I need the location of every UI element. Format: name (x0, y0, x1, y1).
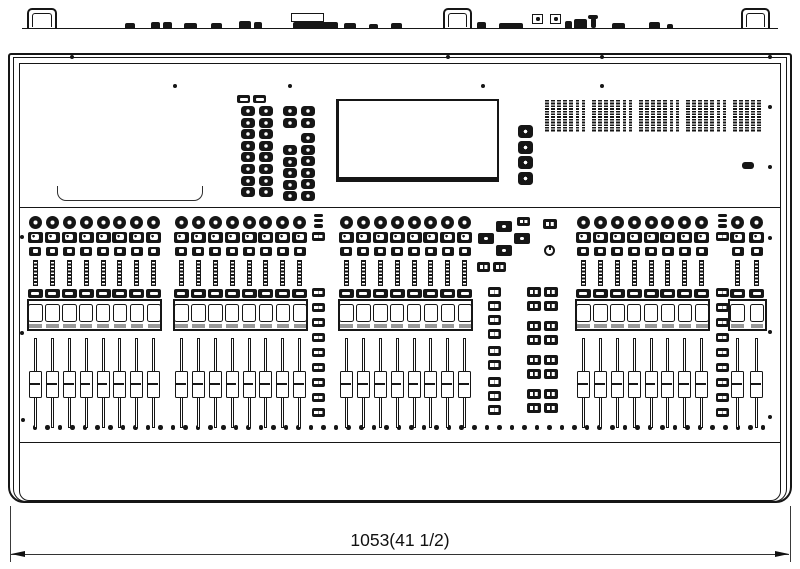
display-window (28, 304, 43, 323)
fader-knob-groove (409, 383, 419, 386)
scene-button (488, 346, 501, 356)
button-led-dots (314, 321, 317, 324)
display-window (441, 304, 456, 323)
channel-cue-button (459, 247, 471, 257)
channel-name-display (644, 304, 659, 328)
master-button (544, 301, 558, 311)
select-button-glyph (99, 234, 107, 240)
button-slot (48, 292, 56, 295)
fader-knob-groove (595, 383, 605, 386)
button-led-dots (530, 372, 533, 375)
cue-button-glyph (263, 249, 268, 253)
button-led-dots (718, 366, 721, 369)
touchscreen-display (336, 99, 499, 182)
meter-bridge-led-strip (698, 100, 702, 132)
channel-level-meter (230, 260, 235, 286)
channel-select-button (356, 232, 371, 243)
hand-rest-tray (57, 186, 203, 201)
button-led-dots (718, 336, 721, 339)
button-led-dots (496, 265, 499, 268)
fader-knob-groove (260, 383, 270, 386)
rear-connector-box (291, 13, 324, 22)
selected-channel-encoder-knob (259, 118, 273, 128)
display-bar (357, 324, 370, 328)
display-bar (148, 324, 161, 328)
select-button-glyph (630, 234, 638, 240)
screw-hole (70, 425, 75, 430)
display-bar (114, 324, 127, 328)
screw-hole (497, 425, 502, 430)
channel-level-meter (84, 260, 89, 286)
center-encoder-knob (518, 156, 533, 169)
button-led-dots (490, 380, 493, 383)
channel-encoder-knob (46, 216, 59, 229)
display-bar (209, 324, 222, 328)
fader-knob (130, 371, 143, 398)
meter-bridge-led-strip (616, 100, 620, 132)
rear-connector-bump (211, 23, 222, 29)
button-led-dots (718, 306, 721, 309)
screw-hole (284, 425, 289, 430)
center-button (517, 217, 530, 226)
display-bar (374, 324, 387, 328)
meter-bridge-led-strip (704, 100, 708, 132)
channel-on-button (146, 289, 161, 298)
selected-channel-encoder-knob (259, 141, 273, 151)
display-window (644, 304, 659, 323)
scene-button (488, 315, 501, 325)
channel-encoder-knob (147, 216, 160, 229)
select-button-glyph (376, 234, 384, 240)
channel-level-meter (412, 260, 417, 286)
fader-knob (611, 371, 624, 398)
channel-select-button (390, 232, 405, 243)
button-led-dots (314, 411, 317, 414)
display-window (339, 304, 354, 323)
fader-knob-groove (679, 383, 689, 386)
column-button (716, 288, 729, 298)
column-button (312, 303, 325, 313)
channel-name-display (576, 304, 591, 328)
cue-button-glyph (462, 249, 467, 253)
channel-on-button (390, 289, 405, 298)
channel-on-button (242, 289, 257, 298)
selected-channel-encoder-knob (283, 157, 297, 167)
fader-knob-groove (131, 383, 141, 386)
channel-encoder-knob (226, 216, 239, 229)
channel-cue-button (97, 247, 109, 257)
channel-name-display (62, 304, 77, 328)
channel-level-meter (134, 260, 139, 286)
select-button-glyph (753, 234, 761, 240)
select-button-glyph (393, 234, 401, 240)
channel-cue-button (46, 247, 58, 257)
channel-name-display (441, 304, 456, 328)
channel-select-button (45, 232, 60, 243)
channel-level-meter (699, 260, 704, 286)
screw-hole (710, 425, 715, 430)
fader-knob-groove (662, 383, 672, 386)
master-button (544, 335, 558, 345)
display-bar (751, 324, 764, 328)
button-led-dots (546, 222, 549, 225)
channel-name-display (339, 304, 354, 328)
cursor-dot (484, 237, 487, 240)
meter-bridge-led-strip (651, 100, 655, 132)
display-bar (260, 324, 273, 328)
selected-channel-encoder-knob (283, 106, 297, 116)
select-button-glyph (245, 234, 253, 240)
channel-cue-button (732, 247, 744, 257)
fader-knob (209, 371, 222, 398)
meter-bridge-led-strip (645, 100, 649, 132)
channel-select-button (749, 232, 764, 243)
cue-button-glyph (395, 249, 400, 253)
meter-bridge-led-strip (717, 100, 721, 132)
cursor-down-button (496, 245, 512, 256)
display-bar (277, 324, 290, 328)
channel-select-button (292, 232, 307, 243)
button-led-dots (547, 372, 550, 375)
channel-encoder-knob (374, 216, 387, 229)
selected-channel-encoder-knob (259, 129, 273, 139)
master-button (544, 403, 558, 413)
cue-button-glyph (280, 249, 285, 253)
button-led-dots (530, 338, 533, 341)
channel-level-meter (428, 260, 433, 286)
fader-knob (577, 371, 590, 398)
button-slot (31, 292, 39, 295)
channel-select-button (96, 232, 111, 243)
screw-hole (510, 425, 515, 430)
fader-knob (441, 371, 454, 398)
display-bar (442, 324, 455, 328)
selected-channel-encoder-knob (241, 129, 255, 139)
screw-hole (748, 425, 753, 430)
rear-connector-bump (667, 24, 673, 28)
meter-bridge-led-strip (723, 100, 727, 132)
channel-level-meter (247, 260, 252, 286)
button-slot (444, 292, 452, 295)
meter-bridge-led-strip (676, 100, 680, 132)
channel-name-display (276, 304, 291, 328)
display-window (276, 304, 291, 323)
button-slot (647, 292, 655, 295)
channel-name-display (191, 304, 206, 328)
button-led-dots (718, 351, 721, 354)
indicator-led-bar (718, 224, 727, 227)
rear-connector-socket (550, 14, 561, 24)
channel-encoder-knob (357, 216, 370, 229)
display-window (113, 304, 128, 323)
channel-name-display (593, 304, 608, 328)
screw-hole (610, 425, 615, 430)
channel-level-meter (598, 260, 603, 286)
channel-encoder-knob (97, 216, 110, 229)
channel-select-button (62, 232, 77, 243)
meter-bridge-led-strip (582, 100, 586, 132)
select-button-glyph (194, 234, 202, 240)
meter-bridge-led-strip (686, 100, 690, 132)
meter-bridge-led-strip (733, 100, 737, 132)
button-led-dots (490, 408, 493, 411)
scene-button (488, 287, 501, 297)
selected-channel-encoder-knob (241, 164, 255, 174)
select-button-glyph (444, 234, 452, 240)
meter-bridge-led-strip (670, 100, 674, 132)
master-button (527, 355, 541, 365)
fader-knob (63, 371, 76, 398)
button-slot (133, 292, 141, 295)
button-slot (461, 292, 469, 295)
cue-button-glyph (665, 249, 670, 253)
master-button (527, 389, 541, 399)
selected-channel-button (237, 95, 250, 103)
select-button-glyph (410, 234, 418, 240)
mixing-console-technical-drawing: 1053(41 1/2) (0, 0, 800, 569)
screw-hole (372, 425, 377, 430)
selected-channel-encoder-knob (283, 145, 297, 155)
fader-knob (147, 371, 160, 398)
cue-button-glyph (361, 249, 366, 253)
select-button-glyph (427, 234, 435, 240)
fader-knob (175, 371, 188, 398)
fader-knob-groove (294, 383, 304, 386)
master-button (544, 287, 558, 297)
cursor-left-button (478, 233, 494, 244)
channel-encoder-knob (276, 216, 289, 229)
select-button-glyph (177, 234, 185, 240)
channel-encoder-knob (458, 216, 471, 229)
display-bar (731, 324, 744, 328)
fader-knob (192, 371, 205, 398)
screw-hole (234, 425, 239, 430)
cursor-dot (502, 249, 505, 252)
channel-select-button (407, 232, 422, 243)
dimension-extension-line-right (790, 506, 791, 562)
display-window (661, 304, 676, 323)
channel-cue-button (63, 247, 75, 257)
button-led-dots (547, 290, 550, 293)
channel-cue-button (340, 247, 352, 257)
rear-connector-bump (649, 22, 660, 29)
master-button (544, 369, 558, 379)
fader-knob (340, 371, 353, 398)
meter-bridge-led-strip (576, 100, 580, 132)
screw-hole (485, 425, 490, 430)
screw-hole (434, 425, 439, 430)
button-led-dots (490, 318, 493, 321)
display-window (174, 304, 189, 323)
display-window (390, 304, 405, 323)
fader-knob-groove (459, 383, 469, 386)
socket-pin (536, 17, 539, 20)
screw-hole (547, 425, 552, 430)
channel-level-meter (297, 260, 302, 286)
channel-level-meter (462, 260, 467, 286)
button-led-dots (718, 396, 721, 399)
channel-encoder-knob (678, 216, 691, 229)
channel-name-display (407, 304, 422, 328)
cue-button-glyph (598, 249, 603, 253)
channel-select-button (694, 232, 709, 243)
channel-encoder-knob (645, 216, 658, 229)
button-slot (177, 292, 185, 295)
display-window (458, 304, 473, 323)
button-led-dots (530, 358, 533, 361)
channel-cue-button (425, 247, 437, 257)
screw-hole (635, 425, 640, 430)
select-button-glyph (698, 234, 706, 240)
power-standby-icon (544, 245, 555, 256)
channel-on-button (258, 289, 273, 298)
channel-on-button (423, 289, 438, 298)
channel-select-button (660, 232, 675, 243)
meter-bridge-led-strip (710, 100, 714, 132)
channel-level-meter (117, 260, 122, 286)
fader-knob (458, 371, 471, 398)
cue-button-glyph (134, 249, 139, 253)
cue-button-glyph (67, 249, 72, 253)
column-button (716, 408, 729, 418)
meter-bridge-led-strip (692, 100, 696, 132)
channel-cue-button (277, 247, 289, 257)
channel-on-button (407, 289, 422, 298)
channel-name-display (678, 304, 693, 328)
fader-knob-groove (30, 383, 40, 386)
fader-knob (391, 371, 404, 398)
fader-knob-groove (81, 383, 91, 386)
button-led-dots (530, 304, 533, 307)
channel-select-button (225, 232, 240, 243)
channel-name-display (28, 304, 43, 328)
cue-button-glyph (615, 249, 620, 253)
channel-cue-button (209, 247, 221, 257)
select-button-glyph (133, 234, 141, 240)
rear-connector-bump (565, 21, 572, 29)
column-button (312, 318, 325, 328)
channel-select-button (423, 232, 438, 243)
fader-knob-groove (193, 383, 203, 386)
screw-hole (623, 425, 628, 430)
cue-button-glyph (649, 249, 654, 253)
display-bar (226, 324, 239, 328)
channel-cue-button (294, 247, 306, 257)
select-button-glyph (342, 234, 350, 240)
channel-cue-button (226, 247, 238, 257)
display-window (147, 304, 162, 323)
channel-level-meter (67, 260, 72, 286)
fader-knob (243, 371, 256, 398)
center-button (543, 219, 557, 229)
rear-connector-bump (151, 22, 160, 29)
channel-cue-button (29, 247, 41, 257)
display-bar (611, 324, 624, 328)
meter-bridge-led-strip (598, 100, 602, 132)
carry-handle-inner-line (32, 13, 52, 27)
fader-knob (731, 371, 744, 398)
channel-cue-button (645, 247, 657, 257)
button-led-dots (547, 338, 550, 341)
channel-name-display (113, 304, 128, 328)
channel-select-button (275, 232, 290, 243)
fader-knob-groove (210, 383, 220, 386)
display-window (293, 304, 308, 323)
select-button-glyph (48, 234, 56, 240)
button-slot (410, 292, 418, 295)
screw-hole (422, 425, 427, 430)
select-button-glyph (31, 234, 39, 240)
display-bar (46, 324, 59, 328)
cue-button-glyph (699, 249, 704, 253)
column-button (312, 408, 325, 418)
channel-encoder-knob (80, 216, 93, 229)
selected-channel-encoder-knob (301, 191, 315, 201)
channel-cue-button (357, 247, 369, 257)
button-led-dots (530, 392, 533, 395)
channel-name-display (424, 304, 439, 328)
screw-hole (259, 425, 264, 430)
button-slot (228, 292, 236, 295)
master-button (544, 321, 558, 331)
button-slot (245, 292, 253, 295)
channel-encoder-knob (29, 216, 42, 229)
channel-name-display (356, 304, 371, 328)
column-button (716, 318, 729, 328)
channel-cue-button (577, 247, 589, 257)
master-button (544, 389, 558, 399)
select-button-glyph (211, 234, 219, 240)
cue-button-glyph (754, 249, 759, 253)
column-button (312, 288, 325, 298)
indicator-led-bar (314, 214, 323, 217)
display-bar (645, 324, 658, 328)
fader-knob-groove (358, 383, 368, 386)
center-encoder-knob (518, 125, 533, 138)
channel-level-meter (445, 260, 450, 286)
rear-connector-bump (499, 23, 523, 28)
selected-channel-encoder-knob (241, 187, 255, 197)
button-slot (681, 292, 689, 295)
channel-level-meter (581, 260, 586, 286)
selected-channel-encoder-knob (241, 152, 255, 162)
channel-on-button (373, 289, 388, 298)
display-bar (340, 324, 353, 328)
button-led-dots (547, 406, 550, 409)
channel-select-button (79, 232, 94, 243)
display-window (130, 304, 145, 323)
channel-select-button (146, 232, 161, 243)
channel-on-button (356, 289, 371, 298)
select-button-glyph (296, 234, 304, 240)
selected-channel-encoder-knob (259, 176, 273, 186)
button-led-dots (314, 336, 317, 339)
display-bar (63, 324, 76, 328)
column-button (312, 333, 325, 343)
display-bar (662, 324, 675, 328)
rear-connector-bump (293, 22, 338, 29)
display-bar (175, 324, 188, 328)
display-window (593, 304, 608, 323)
carry-handle-inner-line (746, 13, 765, 27)
cue-button-glyph (581, 249, 586, 253)
fader-knob (661, 371, 674, 398)
channel-level-meter (395, 260, 400, 286)
rear-connector-socket (532, 14, 543, 24)
display-window (356, 304, 371, 323)
selected-channel-encoder-knob (301, 133, 315, 143)
rear-connector-tee-stem (591, 18, 596, 28)
